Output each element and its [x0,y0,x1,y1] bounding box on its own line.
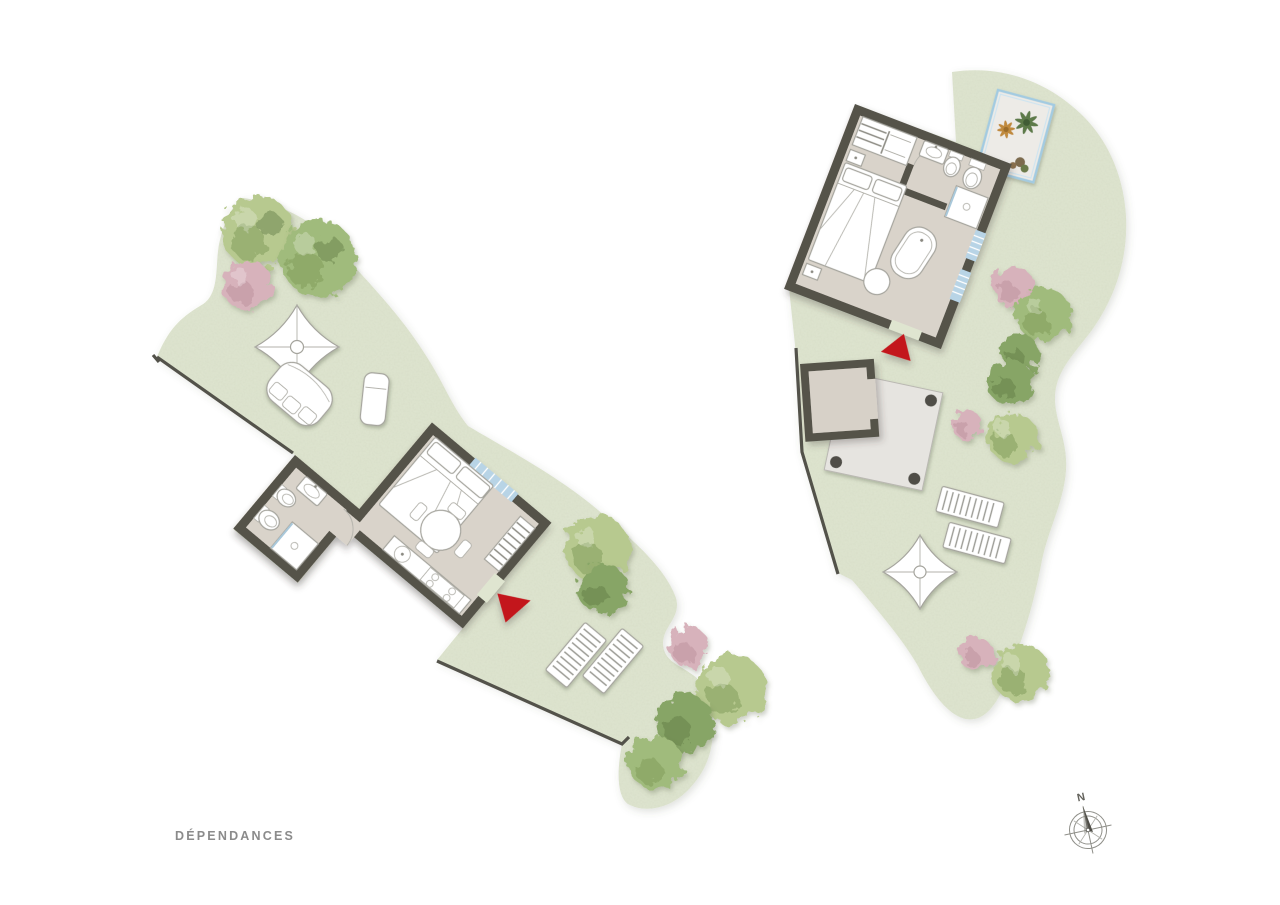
tree [669,627,709,667]
parasol-pole [291,341,304,354]
tree [222,260,272,310]
tree [987,412,1037,462]
sun-lounger [360,372,390,426]
tree [1016,287,1070,341]
tree [987,359,1033,405]
tree [959,637,993,671]
shed-floor [809,367,871,433]
compass-north-label: N [1076,791,1086,804]
parasol-pole [914,566,926,578]
tree [280,220,356,296]
tree [992,644,1050,702]
garden-plot-left [153,196,766,809]
tree [951,409,981,439]
tree [628,735,682,789]
compass-rose: N [1056,787,1116,859]
compass-hub [1086,828,1090,832]
garden-shed [800,359,879,442]
tree [578,564,628,614]
plan-title: DÉPENDANCES [175,828,295,843]
garden-plot-right [775,70,1126,719]
site-plan: N DÉPENDANCES [0,0,1280,905]
